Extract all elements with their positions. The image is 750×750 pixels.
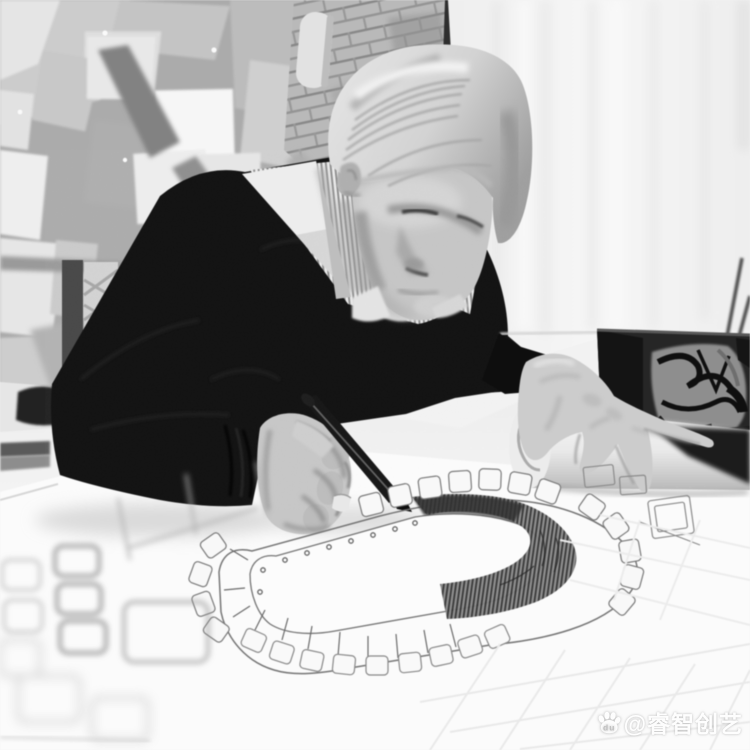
svg-text:du: du <box>603 722 615 732</box>
